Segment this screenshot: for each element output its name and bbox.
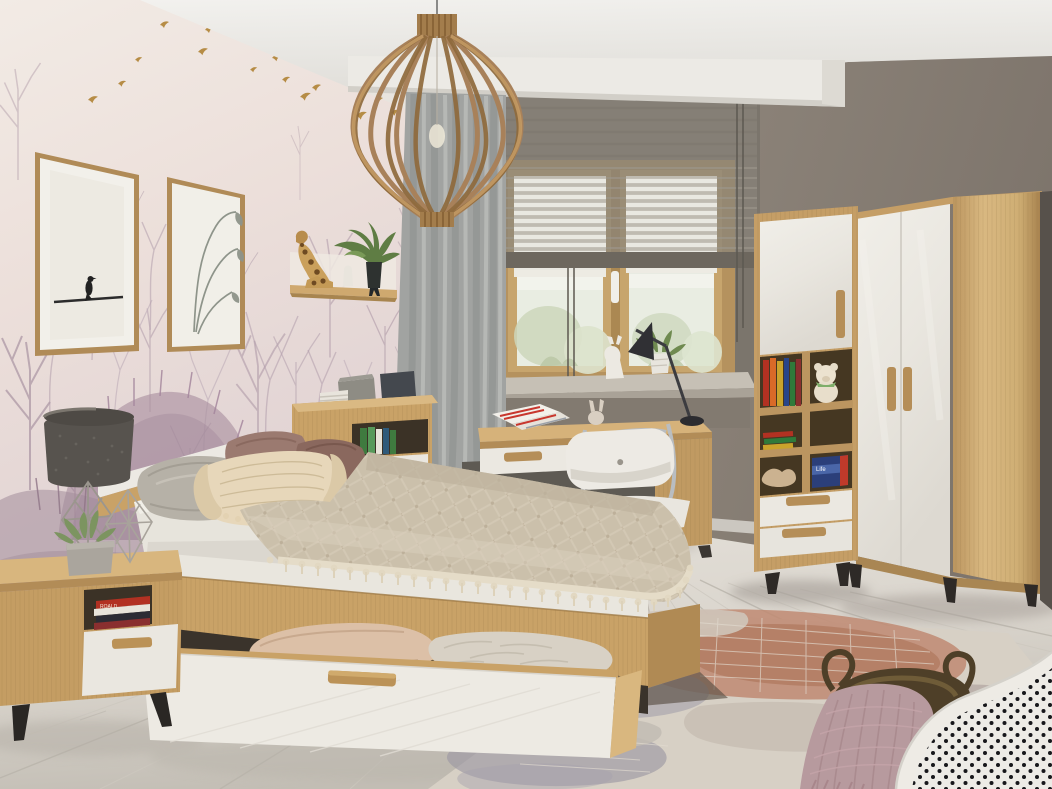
svg-text:ROALD: ROALD — [100, 604, 118, 610]
svg-text:Life: Life — [816, 467, 826, 473]
